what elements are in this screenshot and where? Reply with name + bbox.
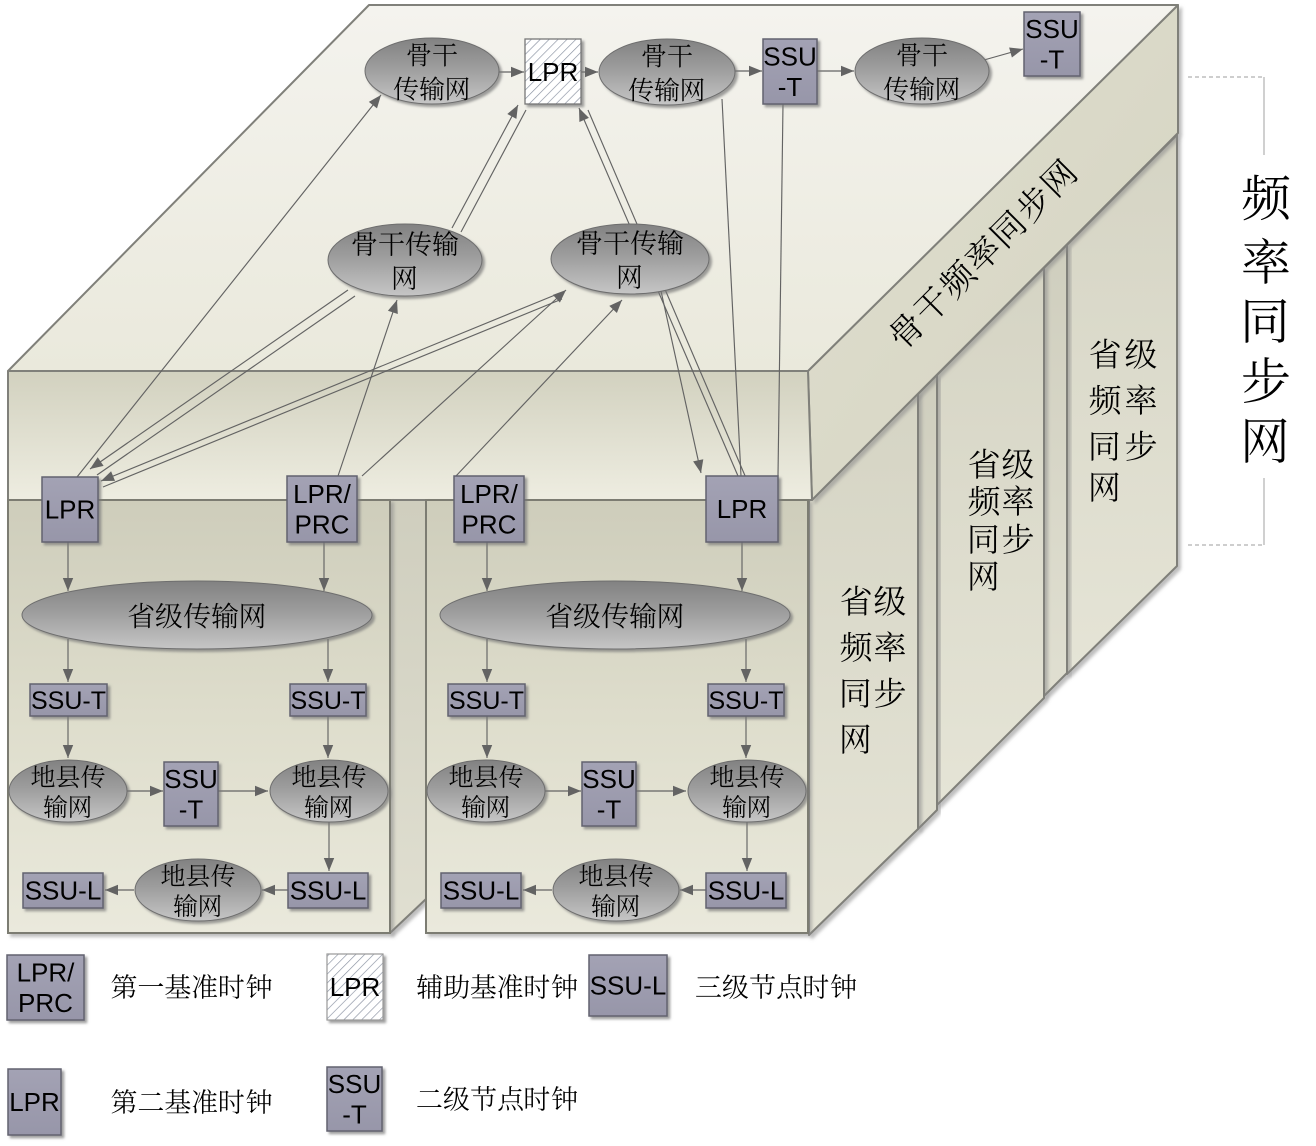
svg-text:SSU-L: SSU-L <box>590 971 667 1001</box>
svg-text:SSU: SSU <box>164 764 217 794</box>
svg-text:SSU-T: SSU-T <box>709 687 784 715</box>
svg-text:SSU: SSU <box>1025 14 1078 44</box>
svg-text:SSU-L: SSU-L <box>290 876 367 906</box>
svg-text:SSU-T: SSU-T <box>449 687 524 715</box>
svg-text:LPR/: LPR/ <box>460 479 519 509</box>
svg-text:-T: -T <box>597 794 622 824</box>
svg-text:LPR: LPR <box>9 1087 60 1117</box>
svg-text:-T: -T <box>1040 44 1065 74</box>
svg-text:LPR: LPR <box>45 495 96 525</box>
svg-text:SSU: SSU <box>328 1069 381 1099</box>
svg-text:PRC: PRC <box>295 509 350 539</box>
svg-text:SSU-T: SSU-T <box>31 687 106 715</box>
svg-text:LPR: LPR <box>528 57 579 87</box>
svg-text:PRC: PRC <box>18 988 73 1018</box>
svg-text:-T: -T <box>179 794 204 824</box>
svg-text:PRC: PRC <box>462 509 517 539</box>
svg-text:-T: -T <box>342 1099 367 1129</box>
svg-text:SSU: SSU <box>763 41 816 71</box>
svg-text:SSU-T: SSU-T <box>291 687 366 715</box>
svg-text:SSU-L: SSU-L <box>443 876 520 906</box>
svg-text:SSU: SSU <box>582 764 635 794</box>
svg-text:SSU-L: SSU-L <box>25 876 102 906</box>
svg-text:LPR/: LPR/ <box>293 479 352 509</box>
svg-text:LPR: LPR <box>717 494 768 524</box>
svg-text:LPR/: LPR/ <box>17 957 76 987</box>
svg-text:LPR: LPR <box>330 972 381 1002</box>
svg-text:SSU-L: SSU-L <box>708 876 785 906</box>
svg-text:-T: -T <box>778 72 803 102</box>
